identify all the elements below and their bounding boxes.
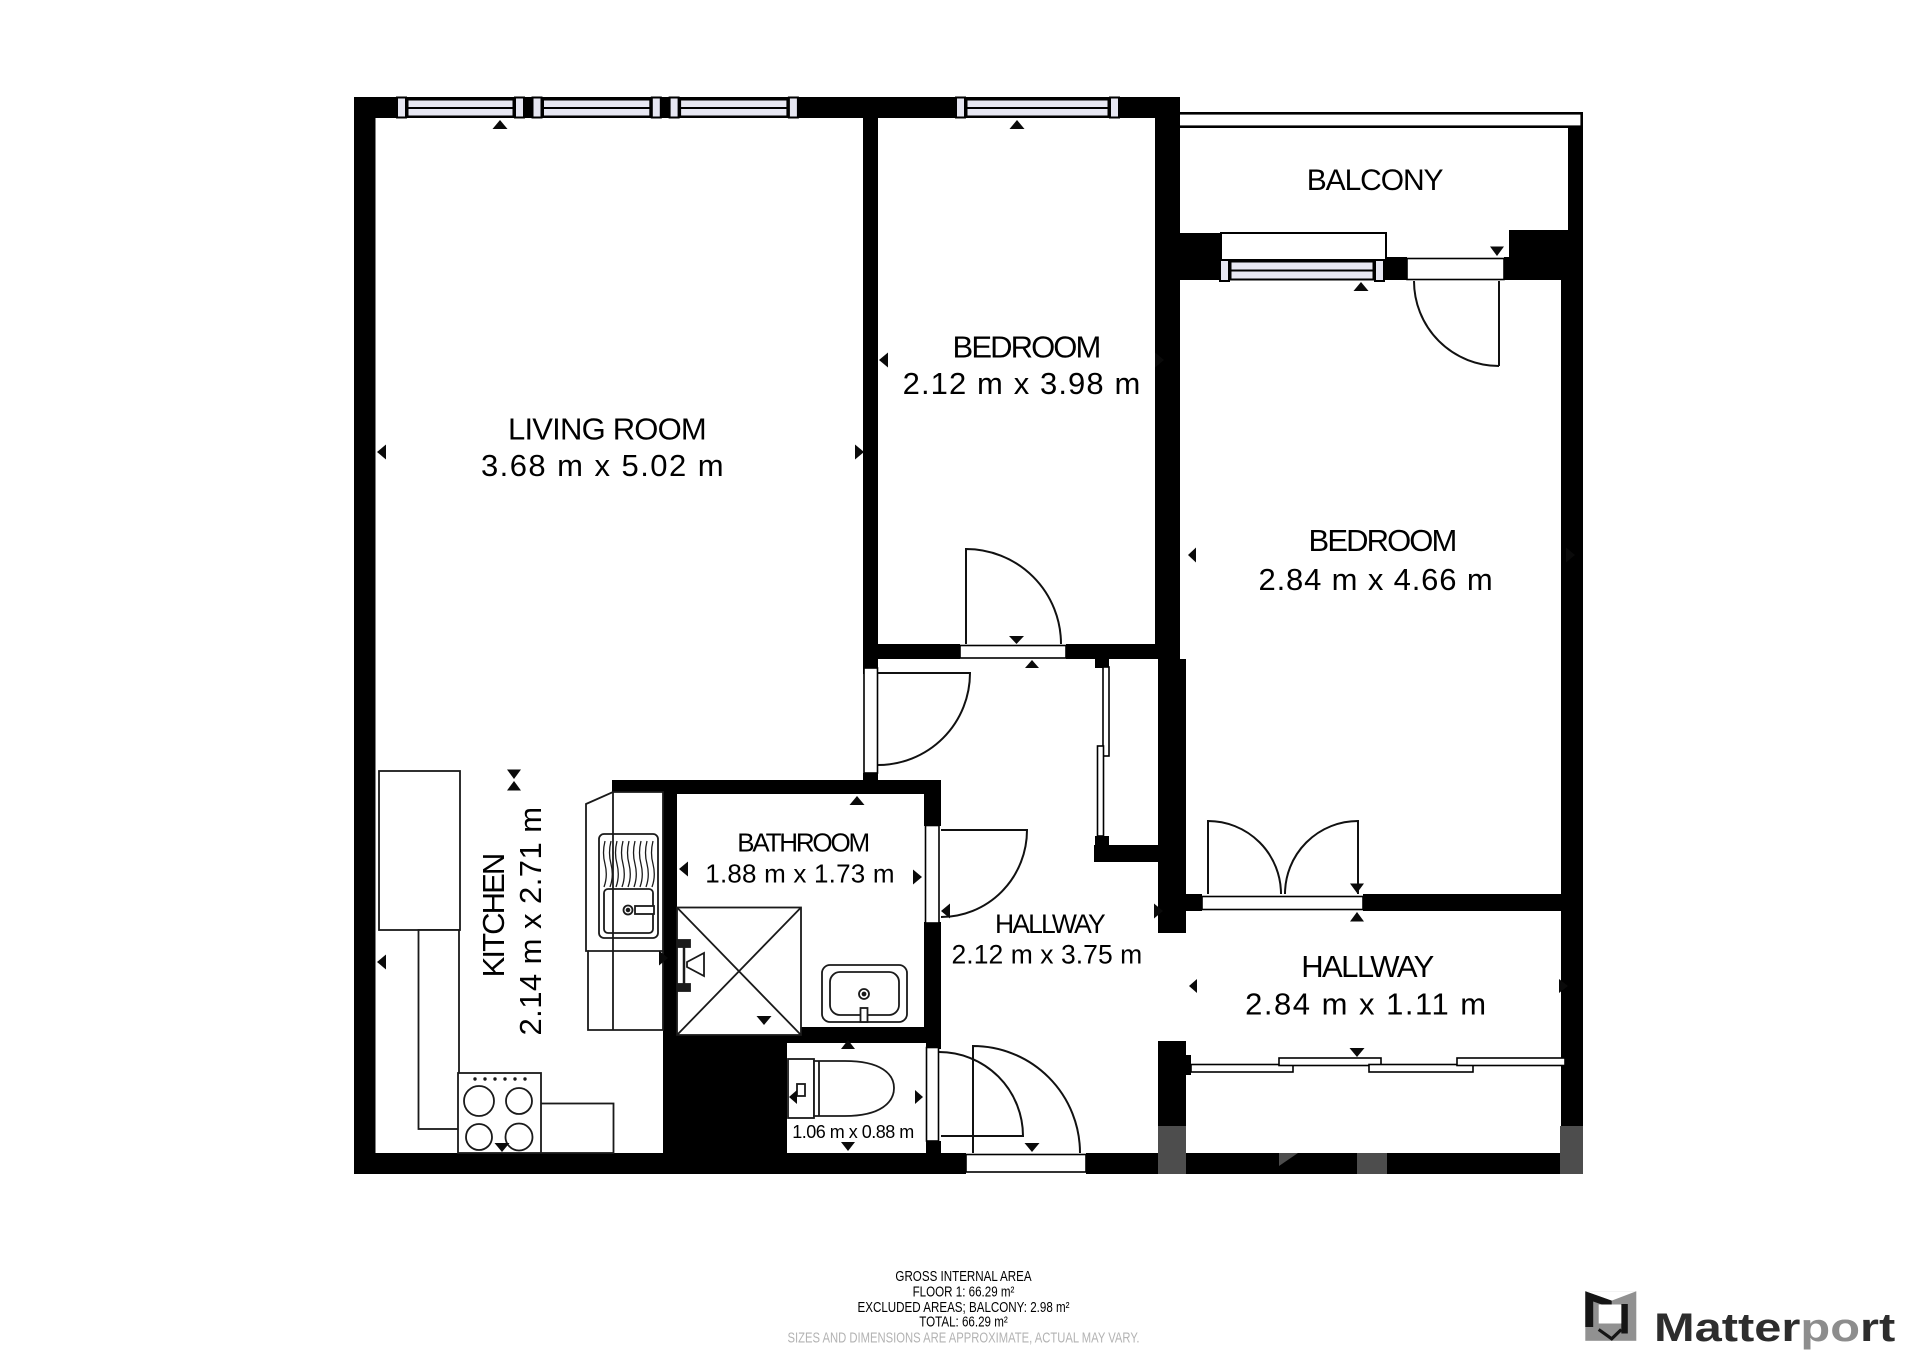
- svg-text:1.88 m x 1.73 m: 1.88 m x 1.73 m: [705, 858, 894, 888]
- svg-text:2.14 m x 2.71 m: 2.14 m x 2.71 m: [513, 806, 548, 1035]
- svg-text:HALLWAY: HALLWAY: [995, 909, 1106, 939]
- svg-text:BEDROOM: BEDROOM: [1309, 523, 1456, 558]
- svg-text:2.84 m x 4.66 m: 2.84 m x 4.66 m: [1258, 562, 1493, 597]
- svg-text:LIVING ROOM: LIVING ROOM: [508, 411, 706, 446]
- svg-text:GROSS INTERNAL AREA: GROSS INTERNAL AREA: [895, 1268, 1031, 1285]
- svg-text:SIZES AND DIMENSIONS ARE APPRO: SIZES AND DIMENSIONS ARE APPROXIMATE, AC…: [788, 1329, 1140, 1346]
- svg-text:FLOOR 1: 66.29 m²: FLOOR 1: 66.29 m²: [913, 1283, 1015, 1300]
- svg-text:2.12 m x 3.75 m: 2.12 m x 3.75 m: [952, 940, 1143, 970]
- svg-text:BALCONY: BALCONY: [1307, 164, 1444, 197]
- svg-text:Matterport: Matterport: [1654, 1306, 1895, 1350]
- svg-text:1.06 m x 0.88 m: 1.06 m x 0.88 m: [792, 1122, 914, 1142]
- svg-text:2.84 m x 1.11 m: 2.84 m x 1.11 m: [1245, 987, 1487, 1022]
- svg-text:TOTAL: 66.29 m²: TOTAL: 66.29 m²: [919, 1313, 1008, 1330]
- svg-text:BATHROOM: BATHROOM: [737, 828, 868, 858]
- svg-text:HALLWAY: HALLWAY: [1301, 949, 1433, 984]
- svg-text:3.68 m x 5.02 m: 3.68 m x 5.02 m: [481, 448, 725, 483]
- svg-text:2.12 m x 3.98 m: 2.12 m x 3.98 m: [903, 366, 1142, 401]
- svg-text:KITCHEN: KITCHEN: [476, 855, 511, 978]
- svg-text:BEDROOM: BEDROOM: [953, 330, 1100, 365]
